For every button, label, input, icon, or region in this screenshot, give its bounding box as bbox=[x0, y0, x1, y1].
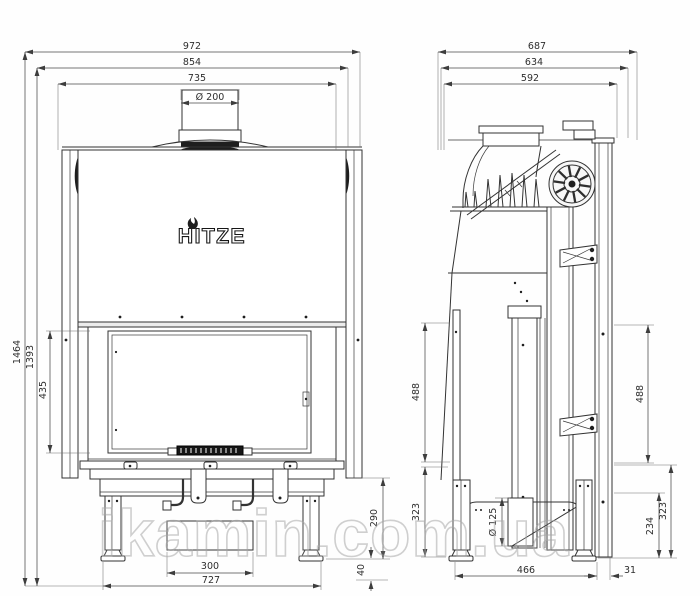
dim-label-435: 435 bbox=[38, 381, 49, 399]
dim-label-687: 687 bbox=[528, 41, 546, 52]
dim-label-323-right: 323 bbox=[658, 502, 669, 520]
dim-label-1464: 1464 bbox=[12, 340, 23, 364]
dim-label-488-left: 488 bbox=[411, 383, 422, 401]
watermark-text: ikamin.com.ua bbox=[98, 496, 570, 570]
dim-label-488-right: 488 bbox=[635, 385, 646, 403]
dim-label-31: 31 bbox=[624, 565, 636, 576]
hitze-logo-text: HITZE bbox=[178, 225, 246, 248]
dim-label-234: 234 bbox=[645, 517, 656, 535]
fireplace-technical-drawing: HITZE 972 854 bbox=[0, 0, 700, 596]
dim-label-634: 634 bbox=[525, 57, 543, 68]
pulley-wheel bbox=[549, 161, 595, 207]
front-door bbox=[88, 327, 336, 461]
dim-label-727: 727 bbox=[202, 575, 220, 586]
side-view bbox=[441, 121, 614, 561]
dim-label-flue-200: Ø 200 bbox=[196, 92, 225, 103]
dim-label-735: 735 bbox=[188, 73, 206, 84]
back-panel bbox=[592, 138, 614, 557]
dim-label-592: 592 bbox=[521, 73, 539, 84]
dim-label-1393: 1393 bbox=[25, 345, 36, 369]
dim-label-972: 972 bbox=[183, 41, 201, 52]
vent-band bbox=[78, 322, 346, 327]
technical-drawing-page: HITZE 972 854 bbox=[0, 0, 700, 596]
dim-label-854: 854 bbox=[183, 57, 201, 68]
front-view: HITZE bbox=[62, 90, 362, 561]
